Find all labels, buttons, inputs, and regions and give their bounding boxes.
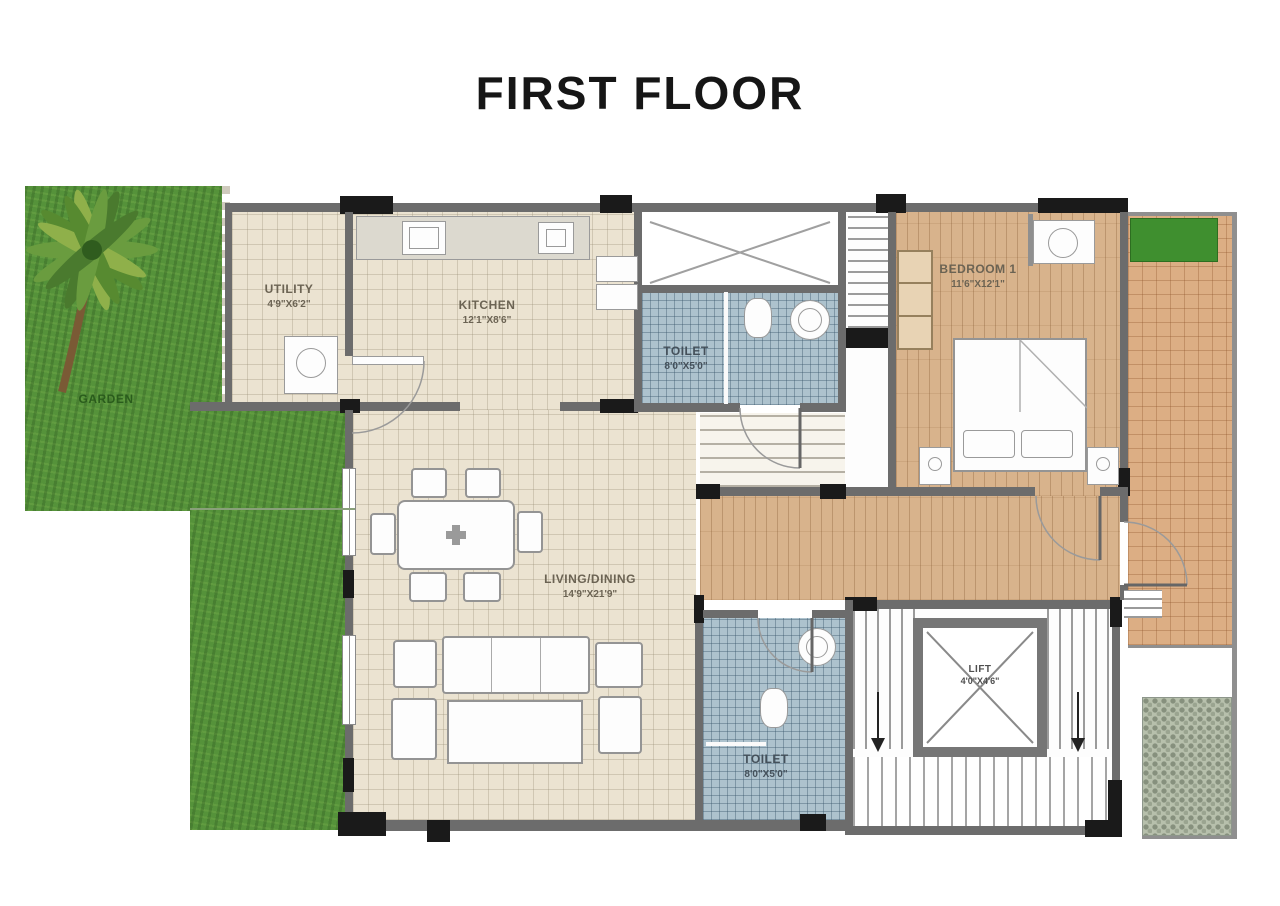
wall-toilet1-bottom	[634, 403, 740, 412]
wall-stair-bedroom	[888, 212, 896, 487]
kitchen-hob-burner	[546, 229, 566, 247]
wall-utility-left	[225, 203, 232, 410]
terrace-boundary	[1232, 212, 1237, 838]
wall-column	[1108, 780, 1122, 825]
stair-wall-segment	[845, 328, 893, 348]
living-dining-label: LIVING/DINING 14'9"X21'9"	[544, 572, 636, 601]
coffee-table	[447, 700, 583, 764]
kitchen-sink-bowl	[409, 227, 439, 249]
toilet2-washbasin-bowl	[806, 636, 828, 658]
dining-chair	[465, 468, 501, 498]
wall-bedroom-bottom	[1100, 487, 1128, 496]
stair-flight-bottom	[853, 757, 1112, 827]
wall-living-left	[345, 410, 353, 468]
wall-column	[820, 484, 846, 499]
sofa-three-seater	[442, 636, 590, 694]
wall-bedroom-right	[1120, 212, 1128, 496]
bed-pillow	[1021, 430, 1073, 458]
wall-living-bottom	[385, 820, 845, 831]
utility-label: UTILITY 4'9"X6'2"	[265, 282, 314, 311]
wall-kitchen-bottom	[190, 402, 460, 411]
terrace-floor	[1128, 216, 1232, 645]
wall-column	[694, 595, 704, 623]
armchair	[595, 642, 643, 688]
garden-name: GARDEN	[78, 392, 133, 408]
wall-toilet1-right	[838, 212, 846, 408]
utility-appliance-drum	[296, 348, 326, 378]
bedside-lamp	[1096, 457, 1110, 471]
wall-toilet1-top	[634, 285, 846, 293]
bed-pillow	[963, 430, 1015, 458]
wall-column	[876, 194, 906, 213]
stair-flight-left	[853, 609, 915, 749]
terrace-planter	[1130, 218, 1218, 262]
wall-column	[427, 820, 450, 842]
terrace-boundary	[1128, 212, 1236, 216]
wall-column	[338, 812, 386, 836]
wall-stairblock-left	[845, 600, 853, 835]
floor-plan-page: FIRST FLOOR	[0, 0, 1280, 906]
wall-toilet2-top	[812, 610, 845, 618]
terrace-steps	[1124, 590, 1162, 618]
toilet1-partition	[724, 292, 728, 404]
wall-column	[800, 814, 826, 831]
duct-shaft	[596, 284, 638, 310]
table-centerpiece	[452, 525, 460, 545]
sofa-cushion-line	[540, 638, 541, 692]
wall-toilet2-left	[695, 595, 703, 828]
toilet1-washbasin-bowl	[798, 308, 822, 332]
dining-chair	[411, 468, 447, 498]
wall-column	[343, 570, 354, 598]
terrace-boundary	[1128, 645, 1232, 648]
wall-column	[1038, 198, 1128, 213]
palm-tree	[14, 160, 194, 400]
wall-utility-kitchen	[345, 212, 353, 356]
dining-chair	[463, 572, 501, 602]
side-chair	[598, 696, 642, 754]
wall-stairblock-top	[845, 600, 1120, 609]
toilet2-partition	[706, 742, 766, 746]
bedside-lamp	[928, 457, 942, 471]
toilet2-wc	[760, 688, 788, 728]
window	[342, 468, 356, 556]
staircase-upper	[848, 216, 890, 328]
wall-bedroom-bottom	[700, 487, 1035, 496]
dining-chair	[370, 513, 396, 555]
sofa-cushion-line	[491, 638, 492, 692]
wall-column	[696, 484, 720, 499]
side-chair	[391, 698, 437, 760]
dining-chair	[409, 572, 447, 602]
kitchen-label: KITCHEN 12'1"X8'6"	[459, 298, 516, 327]
wall-column	[600, 195, 632, 213]
wall-column	[1110, 597, 1122, 627]
wall-toilet1-left	[634, 212, 642, 410]
bedroom-washbasin	[1048, 228, 1078, 258]
lift-label: LIFT 4'0"X4'6"	[961, 663, 1000, 688]
wall-stairblock-bottom	[845, 826, 1120, 835]
wall-toilet1-bottom	[800, 403, 846, 412]
garden-label: GARDEN	[78, 392, 133, 408]
duct-shaft	[596, 256, 638, 282]
wall-column	[343, 758, 354, 792]
armchair	[393, 640, 437, 688]
passage-floor	[700, 496, 1120, 600]
garden-area-lower	[190, 410, 355, 830]
void-area	[642, 218, 838, 288]
page-title: FIRST FLOOR	[0, 66, 1280, 120]
utility-door-leaf	[352, 356, 424, 365]
stair-flight-right	[1047, 609, 1112, 749]
wardrobe	[897, 250, 933, 350]
dining-chair	[517, 511, 543, 553]
wall-toilet2-top	[703, 610, 758, 618]
toilet1-wc	[744, 298, 772, 338]
window	[342, 635, 356, 725]
landing-steps	[700, 413, 845, 487]
wall-column	[600, 399, 638, 413]
wall-passage-right	[1120, 496, 1128, 522]
toilet1-label: TOILET 8'0"X5'0"	[663, 344, 708, 373]
pebble-boundary	[1142, 836, 1237, 839]
toilet2-label: TOILET 8'0"X5'0"	[743, 752, 788, 781]
pebble-court	[1142, 697, 1232, 836]
bedroom1-label: BEDROOM 1 11'6"X12'1"	[939, 262, 1016, 291]
